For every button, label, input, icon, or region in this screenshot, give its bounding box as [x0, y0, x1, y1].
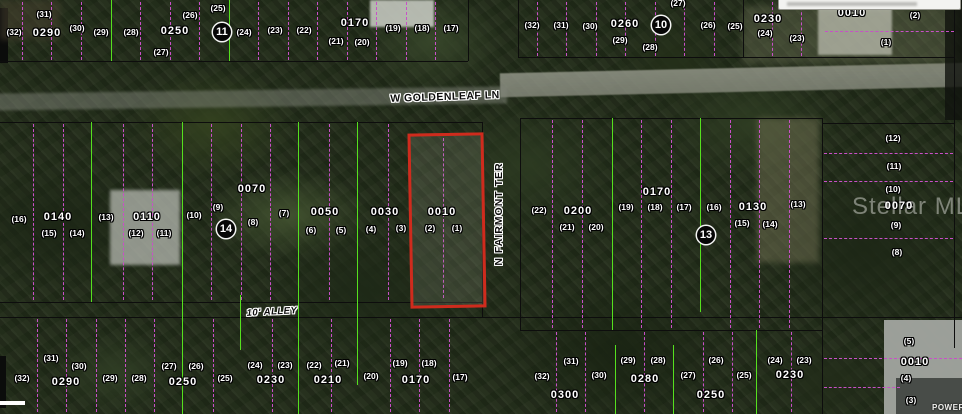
parcel-number-label: 0230: [776, 369, 804, 381]
lot-number-label: (15): [41, 228, 56, 238]
parcel-number-label: 0010: [901, 356, 929, 368]
lot-number-label: (26): [708, 355, 723, 365]
lot-number-label: (20): [363, 371, 378, 381]
parcel-number-label: 0030: [371, 206, 399, 218]
parcel-number-label: 0230: [754, 13, 782, 25]
block-number-badge: 10: [652, 16, 670, 34]
lot-number-label: (31): [563, 356, 578, 366]
lot-number-label: (1): [452, 223, 462, 233]
lot-number-label: (19): [385, 23, 400, 33]
lot-number-label: (1): [881, 37, 891, 47]
parcel-number-label: 0170: [402, 374, 430, 386]
map-labels: W GOLDENLEAF LNN FAIRMONT TER10' ALLEY(3…: [0, 0, 962, 414]
parcel-number-label: 0280: [631, 373, 659, 385]
lot-number-label: (6): [306, 225, 316, 235]
lot-number-label: (8): [892, 247, 902, 257]
block-number-badge: 14: [217, 220, 235, 238]
street-name-label-vertical: N FAIRMONT TER: [493, 162, 505, 265]
parcel-number-label: 0230: [257, 374, 285, 386]
lot-number-label: (23): [277, 360, 292, 370]
lot-number-label: (32): [6, 27, 21, 37]
parcel-number-label: 0260: [611, 18, 639, 30]
lot-number-label: (26): [700, 20, 715, 30]
lot-number-label: (30): [71, 361, 86, 371]
lot-number-label: (17): [443, 23, 458, 33]
lot-number-label: (12): [885, 133, 900, 143]
lot-number-label: (29): [93, 27, 108, 37]
lot-number-label: (28): [131, 373, 146, 383]
parcel-number-label: 0140: [44, 211, 72, 223]
lot-number-label: (25): [217, 373, 232, 383]
lot-number-label: (24): [236, 27, 251, 37]
parcel-number-label: 0290: [33, 27, 61, 39]
lot-number-label: (5): [336, 225, 346, 235]
lot-number-label: (21): [334, 358, 349, 368]
parcel-number-label: 0130: [739, 201, 767, 213]
lot-number-label: (3): [906, 395, 916, 405]
lot-number-label: (27): [680, 370, 695, 380]
lot-number-label: (15): [734, 218, 749, 228]
lot-number-label: (3): [396, 223, 406, 233]
lot-number-label: (30): [591, 370, 606, 380]
parcel-number-label: 0250: [161, 25, 189, 37]
lot-number-label: (27): [670, 0, 685, 8]
lot-number-label: (24): [767, 355, 782, 365]
lot-number-label: (25): [210, 3, 225, 13]
lot-number-label: (16): [706, 202, 721, 212]
cutoff-overlay-box: [778, 0, 961, 10]
lot-number-label: (29): [612, 35, 627, 45]
lot-number-label: (14): [69, 228, 84, 238]
lot-number-label: (24): [757, 28, 772, 38]
lot-number-label: (8): [248, 217, 258, 227]
lot-number-label: (26): [188, 361, 203, 371]
lot-number-label: (28): [123, 27, 138, 37]
lot-number-label: (17): [452, 372, 467, 382]
lot-number-label: (22): [306, 360, 321, 370]
scale-bar: [0, 401, 25, 405]
lot-number-label: (21): [559, 222, 574, 232]
lot-number-label: (2): [910, 10, 920, 20]
lot-number-label: (29): [102, 373, 117, 383]
lot-number-label: (19): [618, 202, 633, 212]
parcel-number-label: 0070: [238, 183, 266, 195]
lot-number-label: (31): [36, 9, 51, 19]
lot-number-label: (20): [588, 222, 603, 232]
lot-number-label: (9): [213, 202, 223, 212]
lot-number-label: (20): [354, 37, 369, 47]
lot-number-label: (26): [182, 10, 197, 20]
parcel-number-label: 0010: [428, 206, 456, 218]
lot-number-label: (5): [904, 336, 914, 346]
power-caption: POWER: [932, 403, 962, 412]
lot-number-label: (30): [582, 21, 597, 31]
lot-number-label: (13): [98, 212, 113, 222]
lot-number-label: (29): [620, 355, 635, 365]
lot-number-label: (14): [762, 219, 777, 229]
lot-number-label: (22): [531, 205, 546, 215]
parcel-number-label: 0290: [52, 376, 80, 388]
parcel-number-label: 0110: [133, 211, 161, 223]
lot-number-label: (16): [11, 214, 26, 224]
parcel-number-label: 0250: [697, 389, 725, 401]
lot-number-label: (32): [14, 373, 29, 383]
parcel-number-label: 0170: [341, 17, 369, 29]
lot-number-label: (30): [69, 23, 84, 33]
lot-number-label: (11): [887, 161, 902, 171]
lot-number-label: (11): [157, 228, 172, 238]
lot-number-label: (2): [425, 223, 435, 233]
lot-number-label: (24): [247, 360, 262, 370]
lot-number-label: (23): [789, 33, 804, 43]
lot-number-label: (10): [186, 210, 201, 220]
lot-number-label: (25): [736, 370, 751, 380]
parcel-number-label: 0050: [311, 206, 339, 218]
lot-number-label: (32): [524, 20, 539, 30]
street-name-label: W GOLDENLEAF LN: [390, 89, 500, 105]
parcel-number-label: 0170: [643, 186, 671, 198]
lot-number-label: (12): [128, 228, 143, 238]
lot-number-label: (22): [296, 25, 311, 35]
lot-number-label: (7): [279, 208, 289, 218]
lot-number-label: (19): [392, 358, 407, 368]
lot-number-label: (23): [796, 355, 811, 365]
lot-number-label: (28): [650, 355, 665, 365]
parcel-number-label: 0250: [169, 376, 197, 388]
lot-number-label: (18): [414, 23, 429, 33]
block-number-badge: 11: [213, 23, 231, 41]
lot-number-label: (25): [727, 21, 742, 31]
lot-number-label: (31): [553, 20, 568, 30]
alley-label: 10' ALLEY: [246, 305, 297, 319]
lot-number-label: (23): [267, 25, 282, 35]
lot-number-label: (21): [328, 36, 343, 46]
lot-number-label: (4): [901, 373, 911, 383]
lot-number-label: (28): [642, 42, 657, 52]
block-number-badge: 13: [697, 226, 715, 244]
lot-number-label: (4): [366, 224, 376, 234]
lot-number-label: (18): [421, 358, 436, 368]
parcel-number-label: 0200: [564, 205, 592, 217]
parcel-number-label: 0210: [314, 374, 342, 386]
parcel-map[interactable]: W GOLDENLEAF LNN FAIRMONT TER10' ALLEY(3…: [0, 0, 962, 414]
lot-number-label: (27): [161, 361, 176, 371]
lot-number-label: (31): [43, 353, 58, 363]
lot-number-label: (27): [153, 47, 168, 57]
lot-number-label: (17): [676, 202, 691, 212]
parcel-number-label: 0300: [551, 389, 579, 401]
lot-number-label: (32): [534, 371, 549, 381]
lot-number-label: (13): [790, 199, 805, 209]
mls-watermark: Stellar MLS: [852, 193, 962, 221]
lot-number-label: (18): [647, 202, 662, 212]
lot-number-label: (9): [891, 220, 901, 230]
